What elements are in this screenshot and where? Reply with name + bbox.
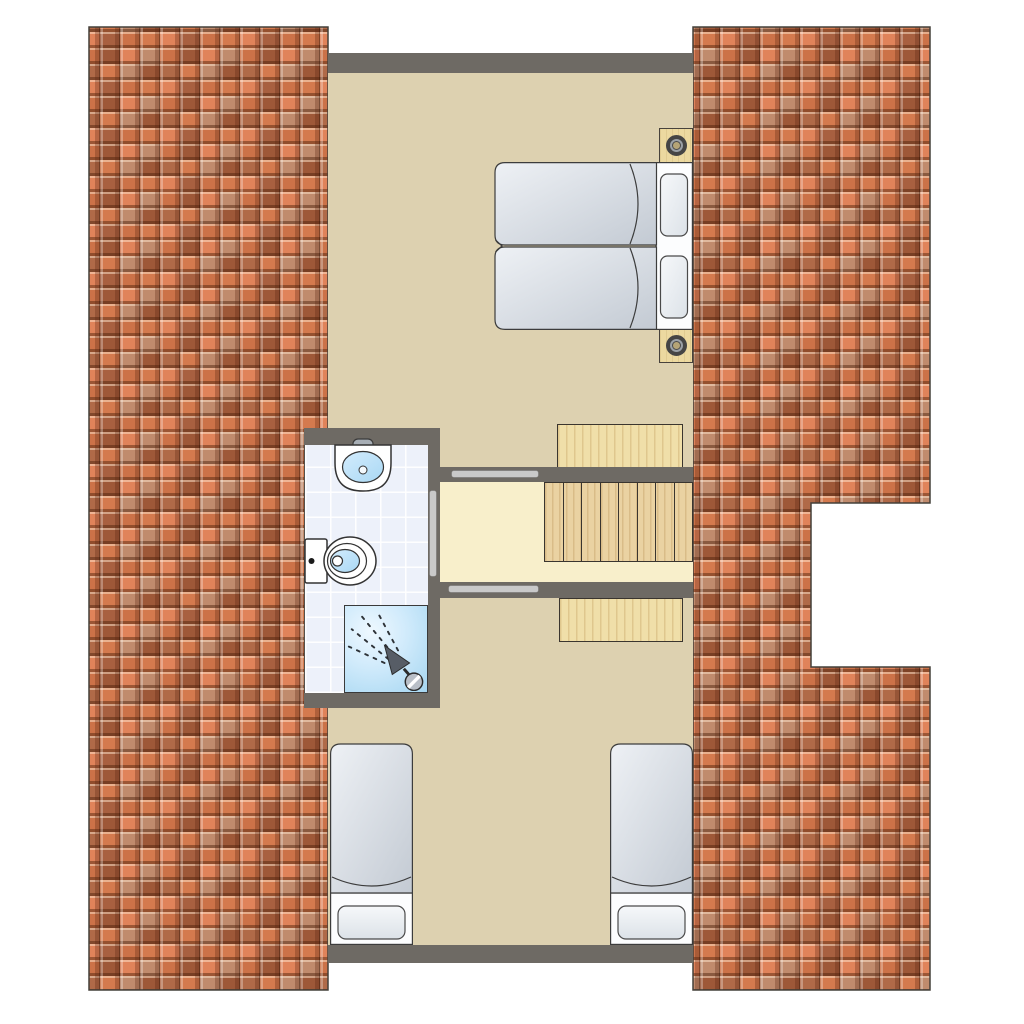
double-bed — [494, 162, 693, 330]
pillow — [618, 906, 685, 939]
staircase — [544, 482, 693, 562]
pillow — [338, 906, 405, 939]
mattress — [495, 247, 657, 329]
bathroom — [304, 428, 440, 708]
pillow — [661, 256, 688, 318]
drain — [359, 466, 367, 474]
door-bathroom — [430, 491, 436, 576]
mattress — [331, 744, 413, 893]
lamp-icon — [666, 335, 687, 356]
door-top-bedroom — [452, 471, 538, 477]
roof-right — [693, 27, 930, 990]
mattress — [495, 163, 657, 245]
lamp-bulb — [672, 341, 681, 350]
shower — [344, 605, 428, 693]
wall-bottom — [328, 945, 693, 963]
stair-tread — [619, 483, 638, 561]
stair-landing-upper — [557, 424, 683, 468]
stair-tread — [675, 483, 693, 561]
stair-tread — [564, 483, 583, 561]
stair-tread — [545, 483, 564, 561]
roof-left — [89, 27, 328, 990]
stair-tread — [656, 483, 675, 561]
single-bed-right — [610, 743, 693, 945]
door-bottom-bedroom — [449, 586, 538, 592]
mattress — [611, 744, 693, 893]
nightstand — [659, 328, 693, 363]
stair-tread — [638, 483, 657, 561]
floor-plan — [0, 0, 1024, 1024]
bowl-outlet — [333, 556, 343, 566]
shower-head-icon — [345, 606, 426, 691]
stair-landing-lower — [559, 598, 683, 642]
flush-button — [309, 558, 315, 564]
pillow — [661, 174, 688, 236]
lamp-bulb — [672, 141, 681, 150]
nightstand — [659, 128, 693, 163]
lamp-icon — [666, 135, 687, 156]
wall-top — [328, 53, 693, 73]
washbasin-icon — [330, 438, 396, 496]
stair-tread — [601, 483, 620, 561]
toilet-icon — [304, 534, 380, 588]
stair-tread — [582, 483, 601, 561]
single-bed-left — [330, 743, 413, 945]
